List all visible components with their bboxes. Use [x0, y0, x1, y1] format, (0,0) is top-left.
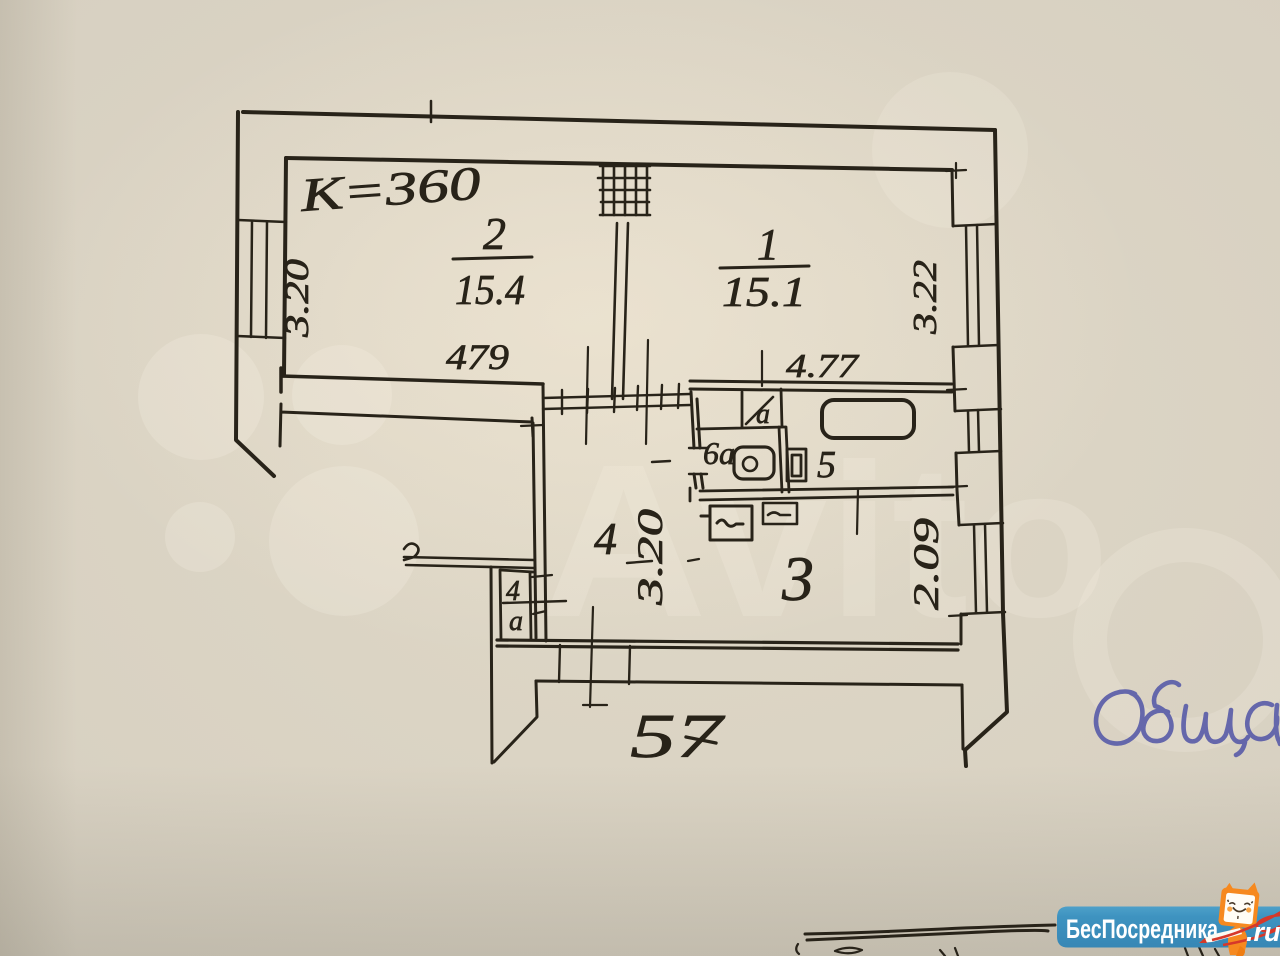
svg-text:a: a [756, 399, 770, 430]
svg-text:.ru: .ru [1246, 917, 1280, 947]
svg-text:К=360: К=360 [298, 158, 483, 223]
svg-text:6a: 6a [703, 435, 735, 471]
svg-text:3: 3 [781, 543, 814, 614]
svg-text:4.77: 4.77 [786, 348, 860, 385]
svg-text:4: 4 [506, 576, 520, 607]
svg-text:15.4: 15.4 [455, 268, 525, 314]
svg-text:2.09: 2.09 [906, 518, 946, 610]
svg-text:3.20: 3.20 [630, 509, 670, 607]
svg-text:3.20: 3.20 [279, 259, 316, 338]
svg-text:БесПосредника: БесПосредника [1066, 914, 1219, 944]
svg-text:3.22: 3.22 [907, 260, 944, 335]
svg-text:2: 2 [483, 208, 506, 259]
svg-text:5: 5 [817, 444, 836, 486]
svg-text:15.1: 15.1 [722, 270, 806, 316]
svg-text:57: 57 [630, 703, 726, 771]
svg-text:4: 4 [594, 513, 617, 564]
svg-text:1: 1 [757, 220, 779, 269]
svg-text:a: a [509, 606, 523, 637]
svg-text:479: 479 [446, 337, 509, 377]
